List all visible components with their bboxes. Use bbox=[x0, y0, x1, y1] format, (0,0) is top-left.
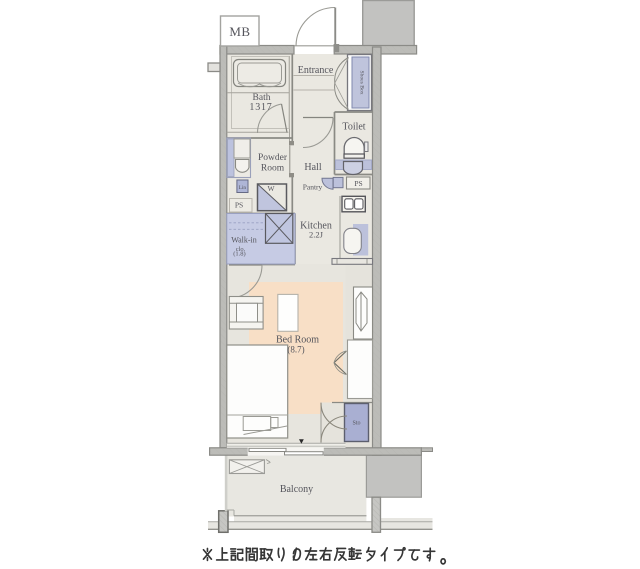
svg-text:Powder: Powder bbox=[258, 153, 288, 163]
svg-text:Balcony: Balcony bbox=[280, 484, 313, 495]
svg-text:(8.7): (8.7) bbox=[287, 345, 304, 355]
svg-text:Toilet: Toilet bbox=[342, 122, 365, 133]
svg-text:2.2J: 2.2J bbox=[309, 230, 324, 240]
svg-text:W: W bbox=[267, 184, 275, 193]
svg-text:Shoes Box: Shoes Box bbox=[359, 70, 365, 94]
svg-text:Room: Room bbox=[261, 164, 285, 174]
svg-text:Pantry: Pantry bbox=[303, 183, 323, 192]
svg-text:Entrance: Entrance bbox=[298, 65, 334, 76]
svg-text:PS: PS bbox=[354, 179, 362, 188]
svg-text:(1.8): (1.8) bbox=[233, 251, 245, 258]
svg-text:Sto: Sto bbox=[352, 421, 360, 427]
svg-text:PS: PS bbox=[235, 201, 243, 210]
svg-text:Lin: Lin bbox=[239, 185, 247, 191]
svg-text:MB: MB bbox=[229, 24, 250, 39]
svg-text:Walk-in: Walk-in bbox=[231, 236, 257, 245]
svg-text:1317: 1317 bbox=[249, 102, 272, 113]
svg-text:Hall: Hall bbox=[304, 162, 321, 173]
